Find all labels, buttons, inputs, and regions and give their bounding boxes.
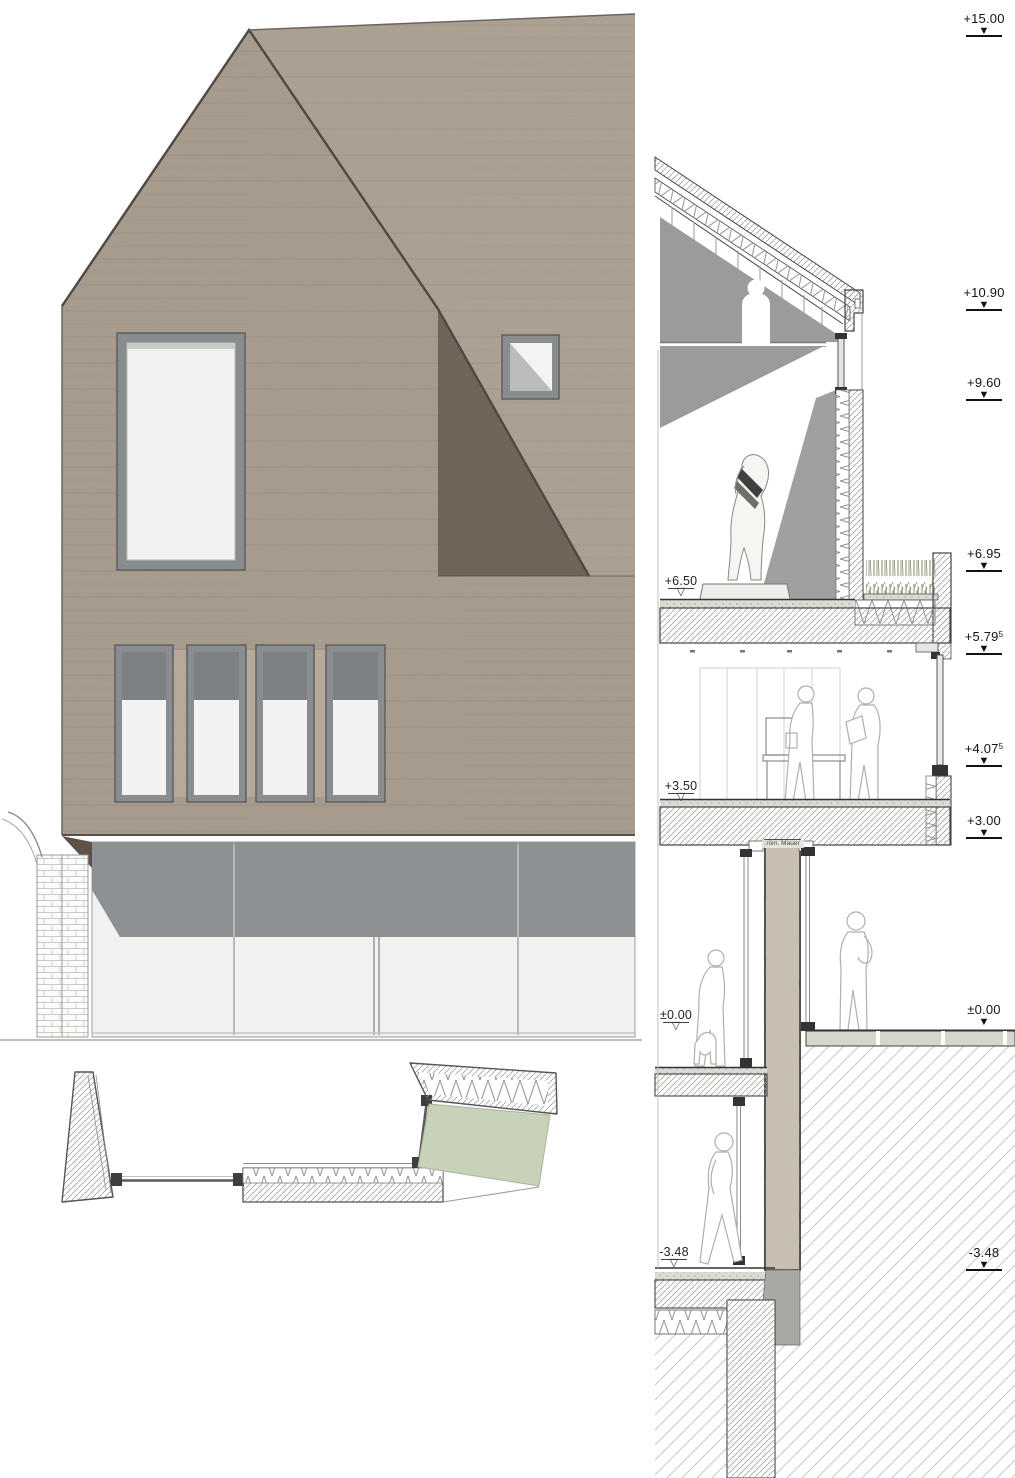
- level-triangle-icon: ▼: [978, 27, 989, 35]
- storefront-glazing: [62, 836, 635, 1037]
- section-wall-right: [836, 390, 863, 608]
- level-marker-0-00-right: ±0.00▼: [952, 1003, 1015, 1026]
- drawing-canvas: [0, 0, 1015, 1478]
- level-marker-3-00: +3.00▼: [952, 814, 1015, 839]
- level-marker-6-50: +6.50▽: [655, 574, 707, 597]
- figure-basement-man: [700, 1133, 742, 1264]
- level-marker-3-50: +3.50▽: [655, 779, 707, 802]
- level-marker-minus-3-48-left: -3.48▽: [648, 1245, 700, 1268]
- small-square-window: [502, 335, 559, 399]
- open-triangle-icon: ▽: [670, 1259, 679, 1268]
- level-marker-15-00: +15.00▼: [952, 12, 1015, 37]
- level-marker-10-90: +10.90▼: [952, 286, 1015, 311]
- open-triangle-icon: ▽: [677, 588, 686, 597]
- level-triangle-icon: ▼: [978, 301, 989, 309]
- level-marker-0-00-left: ±0.00▽: [650, 1008, 702, 1031]
- level-triangle-icon: ▼: [978, 391, 989, 399]
- architectural-drawing-sheet: +15.00▼ +10.90▼ +9.60▼ +6.95▼ +5.795 ▼ +…: [0, 0, 1015, 1478]
- level-triangle-icon: ▼: [978, 562, 989, 570]
- slab-350: [660, 800, 950, 846]
- open-triangle-icon: ▽: [677, 793, 686, 802]
- level-triangle-icon: ▼: [978, 1018, 989, 1026]
- level-triangle-icon: ▼: [978, 757, 989, 765]
- level-marker-4-07: +4.075 ▼: [952, 740, 1015, 767]
- figure-gallery-man: [846, 688, 880, 802]
- level-marker-5-79: +5.795 ▼: [952, 628, 1015, 655]
- plan-detail: [62, 1063, 557, 1202]
- level-marker-minus-3-48-right: -3.48▼: [952, 1246, 1015, 1271]
- level-marker-6-95: +6.95▼: [952, 547, 1015, 572]
- gable-window: [117, 333, 245, 570]
- level-triangle-icon: ▼: [978, 1261, 989, 1269]
- open-triangle-icon: ▽: [672, 1022, 681, 1031]
- level-triangle-icon: ▼: [978, 829, 989, 837]
- figure-gallery-woman: [785, 686, 814, 802]
- clerestory-window: [835, 333, 847, 394]
- pavement: [806, 1030, 1015, 1046]
- level-triangle-icon: ▼: [978, 645, 989, 653]
- figure-exterior-man: [840, 912, 872, 1030]
- level-marker-9-60: +9.60▼: [952, 376, 1015, 401]
- strip-windows: [115, 645, 385, 802]
- roman-wall-label: röm. Mauer: [762, 840, 804, 848]
